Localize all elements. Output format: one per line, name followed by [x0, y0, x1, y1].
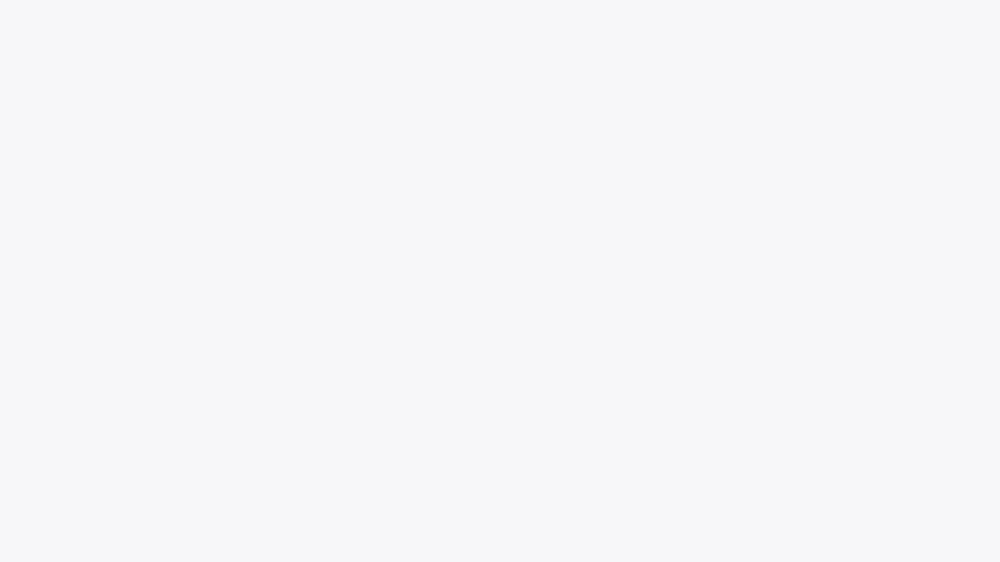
- apartment-isometric-render: [0, 0, 1000, 562]
- apartment-scene-canvas: [0, 0, 1000, 562]
